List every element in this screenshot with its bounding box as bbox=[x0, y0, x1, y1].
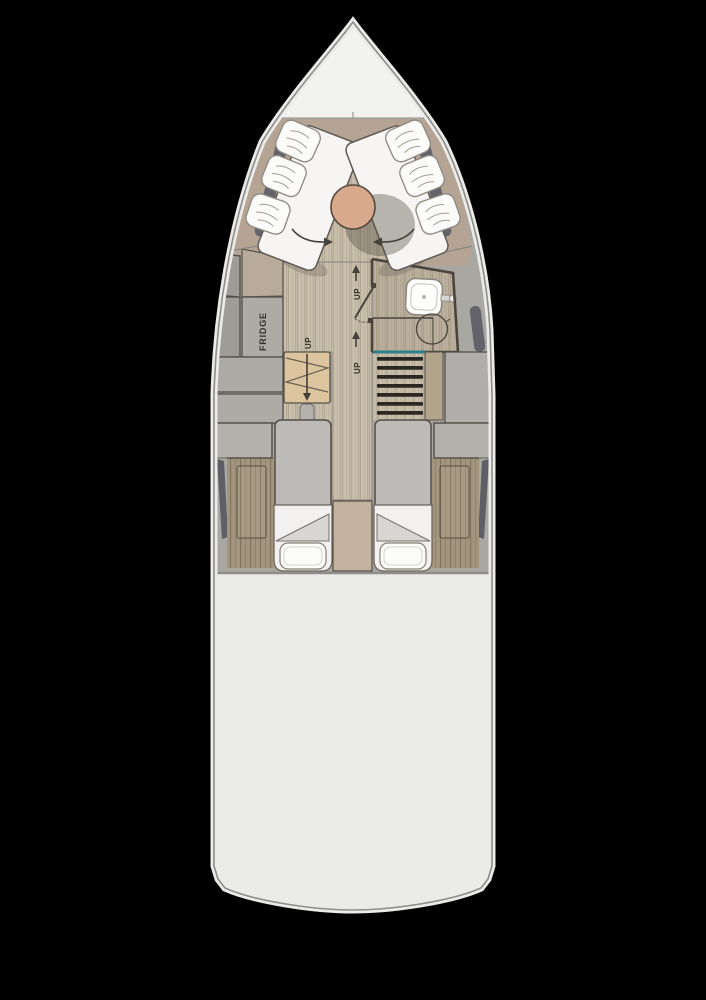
dining-table bbox=[331, 185, 375, 229]
cabinet-port-mid bbox=[212, 357, 283, 392]
floorplan-canvas: FRIDGE UP UP UP bbox=[0, 0, 706, 1000]
cabinet-starboard-mid bbox=[445, 352, 493, 423]
up-label-mid: UP bbox=[353, 362, 362, 374]
aft-center-panel bbox=[333, 501, 372, 571]
door-stop bbox=[368, 318, 373, 323]
foredeck bbox=[271, 25, 436, 118]
floor-locker-port bbox=[237, 466, 266, 538]
berth-pillow-port bbox=[280, 543, 326, 569]
interior: FRIDGE UP UP UP bbox=[205, 25, 505, 574]
up-label-steps: UP bbox=[304, 337, 313, 349]
stair-stringer bbox=[425, 352, 443, 420]
floor-locker-starboard bbox=[440, 466, 469, 538]
berth-pillow-starboard bbox=[380, 543, 426, 569]
yacht-floorplan: FRIDGE UP UP UP bbox=[0, 0, 706, 1000]
cabinet-aft-port bbox=[209, 423, 272, 458]
cabinet-aft-starboard bbox=[434, 423, 497, 458]
fridge-label: FRIDGE bbox=[258, 312, 268, 351]
door-hinge bbox=[371, 283, 376, 288]
up-label-forward: UP bbox=[353, 288, 362, 300]
cabinet-port-lower bbox=[210, 394, 283, 423]
